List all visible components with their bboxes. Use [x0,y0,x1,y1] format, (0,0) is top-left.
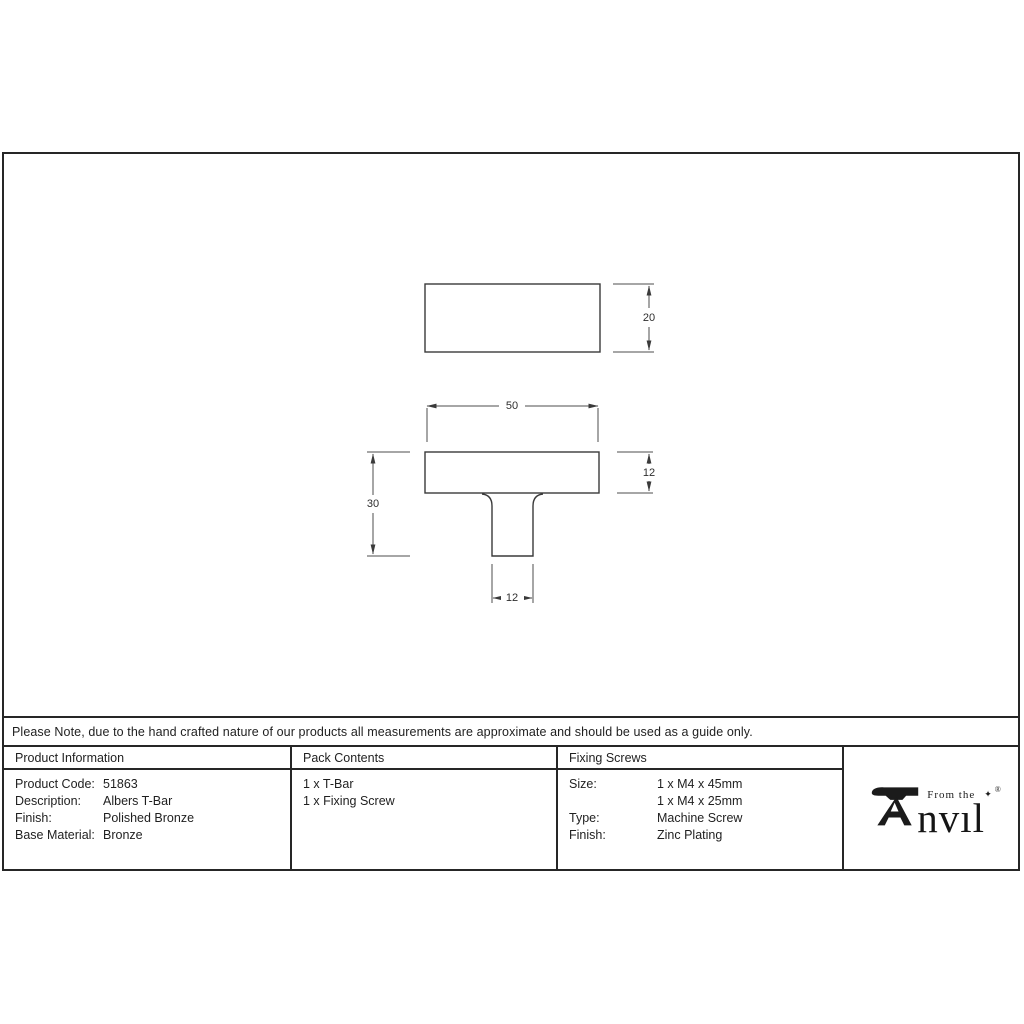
anvil-a-icon [869,782,921,828]
table-row: Type: Machine Screw [569,810,842,827]
technical-drawing: 20 50 [4,154,1018,716]
sheet-frame: 20 50 [2,152,1020,871]
list-item: 1 x T-Bar [303,776,556,793]
stem-outline [482,494,543,556]
fixing-screws-header: Fixing Screws [558,747,842,770]
pack-contents-header: Pack Contents [292,747,556,770]
logo-wordmark: From the ✦ ® nvıl [917,789,993,835]
row-label [569,793,657,810]
front-view: 50 30 12 [363,398,658,606]
dim-depth-20: 20 [643,312,655,324]
row-value: 1 x M4 x 45mm [657,776,742,793]
table-row: Product Code: 51863 [15,776,290,793]
product-information-body: Product Code: 51863 Description: Albers … [4,770,290,844]
row-value: 1 x M4 x 25mm [657,793,742,810]
brand-column: From the ✦ ® nvıl [844,747,1018,869]
fixing-screws-column: Fixing Screws Size: 1 x M4 x 45mm 1 x M4… [558,747,844,869]
registered-mark: ® [995,785,1002,794]
table-row: Finish: Polished Bronze [15,810,290,827]
star-icon: ✦ [984,790,993,799]
table-row: Finish: Zinc Plating [569,827,842,844]
row-label: Description: [15,793,103,810]
row-label: Product Code: [15,776,103,793]
pack-contents-column: Pack Contents 1 x T-Bar 1 x Fixing Screw [292,747,558,869]
top-view: 20 [425,284,659,352]
table-row: Description: Albers T-Bar [15,793,290,810]
from-the-anvil-logo: From the ✦ ® nvıl [869,782,993,835]
list-item: 1 x Fixing Screw [303,793,556,810]
dim-stem-12: 12 [506,592,518,604]
note-text: Please Note, due to the hand crafted nat… [12,725,753,739]
fixing-screws-body: Size: 1 x M4 x 45mm 1 x M4 x 25mm Type: … [558,770,842,844]
spec-table: Product Information Product Code: 51863 … [4,745,1018,869]
note-band: Please Note, due to the hand crafted nat… [4,716,1018,745]
pack-contents-body: 1 x T-Bar 1 x Fixing Screw [292,770,556,810]
row-label: Size: [569,776,657,793]
table-row: 1 x M4 x 25mm [569,793,842,810]
dim-width-50: 50 [506,400,518,412]
table-row: Base Material: Bronze [15,827,290,844]
product-information-column: Product Information Product Code: 51863 … [4,747,292,869]
dim-head-12: 12 [643,467,655,479]
row-value: Zinc Plating [657,827,722,844]
logo-nvil-text: nvıl [917,803,993,835]
row-value: 51863 [103,776,138,793]
row-label: Type: [569,810,657,827]
row-label: Finish: [15,810,103,827]
product-information-header: Product Information [4,747,290,770]
t-bar-drawing: 20 50 [4,154,1018,716]
row-value: Machine Screw [657,810,742,827]
row-label: Base Material: [15,827,103,844]
dim-height-30: 30 [367,498,379,510]
table-row: Size: 1 x M4 x 45mm [569,776,842,793]
row-label: Finish: [569,827,657,844]
spec-sheet-page: 20 50 [0,0,1024,1024]
row-value: Polished Bronze [103,810,194,827]
row-value: Albers T-Bar [103,793,172,810]
row-value: Bronze [103,827,143,844]
